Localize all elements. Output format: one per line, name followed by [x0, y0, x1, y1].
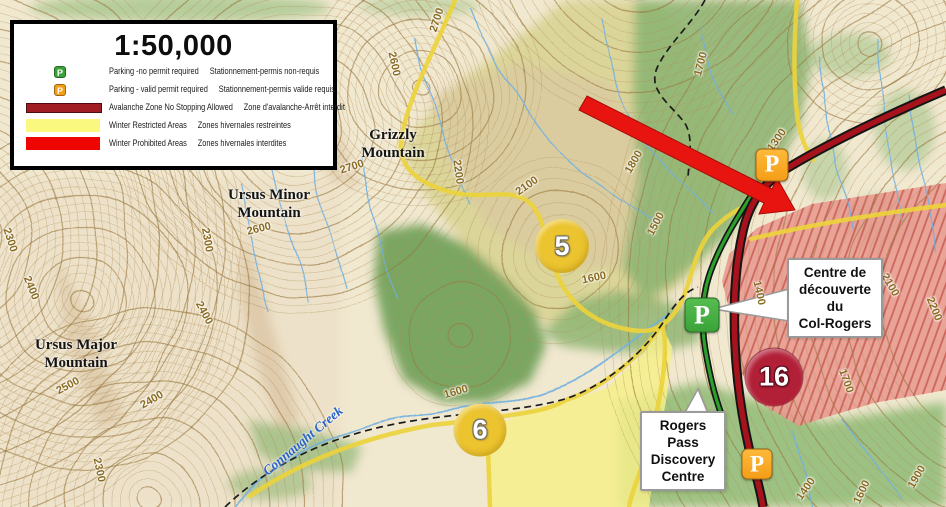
callout-line: du	[791, 298, 879, 315]
callout-line: Discovery	[644, 451, 722, 468]
callout-line: Centre de	[791, 264, 879, 281]
zone-number: 5	[554, 231, 569, 262]
parking-orange-icon: P	[54, 84, 66, 96]
legend-label-en: Winter Prohibited Areas	[109, 138, 187, 149]
callout-line: Rogers	[644, 417, 722, 434]
zone-badge-5[interactable]: 5	[535, 219, 589, 273]
map-canvas[interactable]: 1:50,000 P Parking -no permit requiredSt…	[0, 0, 946, 507]
legend-label-en: Parking -no permit required	[109, 66, 199, 77]
legend-item-parking-permit: P Parking - valid permit requiredStation…	[14, 81, 333, 98]
callout-line: Col-Rogers	[791, 315, 879, 332]
label-grizzly-mountain: GrizzlyMountain	[361, 126, 424, 162]
legend-item-parking-free: P Parking -no permit requiredStationneme…	[14, 63, 333, 80]
legend-label-fr: Zones hivernales restreintes	[198, 120, 291, 131]
legend-item-avalanche-zone: Avalanche Zone No Stopping AllowedZone d…	[14, 99, 333, 116]
legend-label-en: Winter Restricted Areas	[109, 120, 187, 131]
legend-label-en: Parking - valid permit required	[109, 84, 208, 95]
parking-marker-no-permit[interactable]: P	[685, 298, 720, 333]
callout-line: Centre	[644, 468, 722, 485]
parking-marker-permit-south[interactable]: P	[742, 449, 773, 480]
legend-label-fr: Stationnement-permis non-requis	[210, 66, 320, 77]
label-ursus-major-mountain: Ursus MajorMountain	[35, 336, 117, 372]
zone-number: 16	[759, 362, 789, 393]
callout-line: découverte	[791, 281, 879, 298]
legend-panel: 1:50,000 P Parking -no permit requiredSt…	[10, 20, 337, 170]
zone-badge-16[interactable]: 16	[746, 349, 803, 406]
parking-marker-permit-north[interactable]: P	[756, 149, 789, 182]
avalanche-zone-swatch	[26, 103, 102, 113]
zone-badge-6[interactable]: 6	[454, 404, 507, 457]
callout-line: Pass	[644, 434, 722, 451]
callout-rogers-pass-discovery-centre[interactable]: Rogers Pass Discovery Centre	[640, 411, 726, 491]
prohibited-area-swatch	[26, 137, 100, 150]
parking-green-icon: P	[54, 66, 66, 78]
legend-label-fr: Stationnement-permis valide requis	[219, 84, 335, 95]
zone-number: 6	[472, 415, 487, 446]
callout-centre-de-decouverte[interactable]: Centre de découverte du Col-Rogers	[787, 258, 883, 338]
legend-label-fr: Zones hivernales interdites	[198, 138, 287, 149]
legend-item-prohibited-areas: Winter Prohibited AreasZones hivernales …	[14, 135, 333, 152]
restricted-area-swatch	[26, 119, 100, 132]
map-scale: 1:50,000	[14, 30, 333, 62]
legend-item-restricted-areas: Winter Restricted AreasZones hivernales …	[14, 117, 333, 134]
legend-label-fr: Zone d'avalanche-Arrêt interdit	[244, 102, 345, 113]
legend-label-en: Avalanche Zone No Stopping Allowed	[109, 102, 233, 113]
label-ursus-minor-mountain: Ursus MinorMountain	[228, 186, 310, 222]
